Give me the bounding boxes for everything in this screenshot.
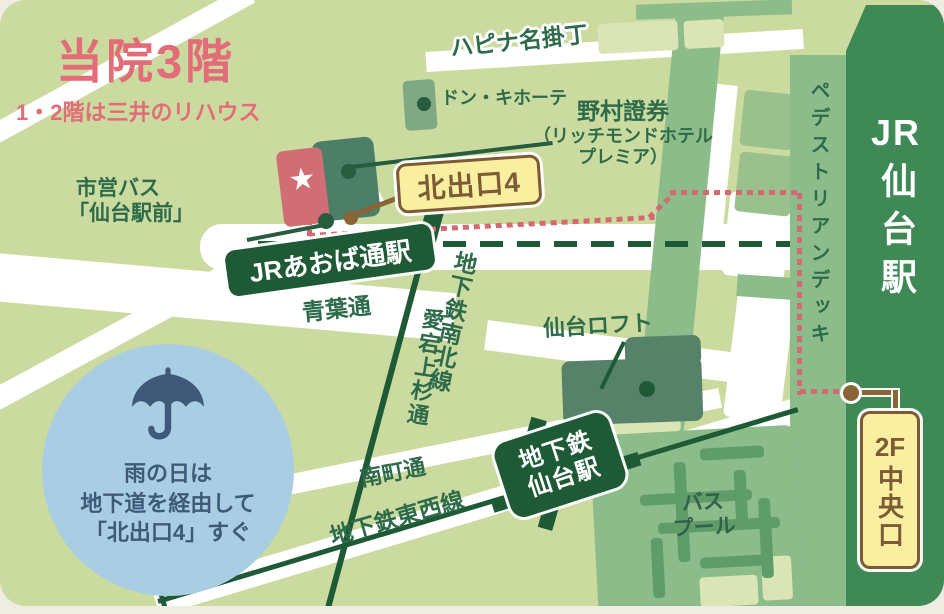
marker-dot-nomura — [341, 164, 356, 179]
label-jr-sendai-station: JR 仙台駅 — [860, 112, 932, 306]
walking-route — [797, 193, 802, 395]
label-pedestrian-deck: ペデストリアンデッキ — [806, 80, 830, 400]
green-mid-connector — [736, 274, 793, 300]
marker-dot-central-exit — [843, 385, 859, 401]
access-map: ★ 当院3階 1・2階は三井のリハウス ハピナ名掛丁 ドン・キホーテ 野村證券 … — [0, 0, 944, 606]
pale-block — [597, 20, 678, 54]
label-nomura: 野村證券 （リッチモンドホテル プレミア） — [518, 98, 728, 169]
central-exit-2f-badge: 2F 中央口 — [860, 411, 920, 569]
umbrella-icon — [127, 366, 209, 453]
marker-dot-donki — [417, 97, 431, 111]
walking-route — [670, 190, 802, 195]
north-exit-4-badge: 北出口4 — [395, 154, 542, 214]
marker-dot-north-exit — [344, 211, 358, 225]
station-front-block-b — [734, 151, 796, 217]
pale-block — [699, 575, 758, 606]
rainy-day-text: 雨の日は 地下道を経由して 「北出口4」すぐ — [80, 459, 255, 548]
pale-block — [683, 19, 724, 49]
rainy-day-note: 雨の日は 地下道を経由して 「北出口4」すぐ — [42, 344, 294, 596]
label-bus-pool: バス プール — [671, 488, 737, 542]
clinic-star-icon: ★ — [287, 164, 321, 227]
clinic-title: 当院3階 — [56, 34, 235, 90]
clinic-subtitle: 1・2階は三井のリハウス — [16, 100, 260, 126]
marker-dot-bus-stop — [318, 213, 334, 229]
marker-dot-loft — [639, 381, 655, 397]
screenshot: ★ 当院3階 1・2階は三井のリハウス ハピナ名掛丁 ドン・キホーテ 野村證券 … — [0, 0, 944, 614]
station-front-block-a — [739, 89, 797, 150]
label-city-bus-stop: 市営バス 「仙台駅前」 — [76, 176, 194, 226]
